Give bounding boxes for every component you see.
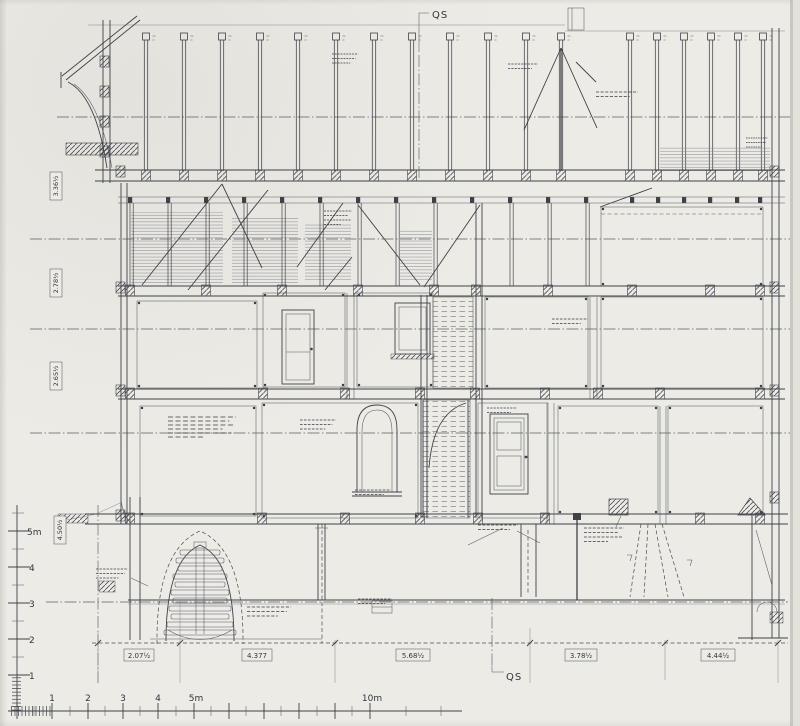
dimension-value: 4.377	[247, 652, 267, 660]
stair-first-floor	[423, 400, 470, 518]
basement-pillar	[518, 524, 539, 597]
scanned-section-drawing-sheet: QS QS 2.07½ 4.377 5.68½ 3.78½ 4.44½ 3.36…	[0, 0, 800, 726]
hscale-label: 2	[85, 694, 91, 704]
cellar-vault-stair	[157, 531, 243, 644]
first-floor	[140, 400, 763, 524]
storey-height-labels: 3.36½ 2.78½ 2.65½ 4.50½	[50, 172, 66, 544]
building-cross-section: QS QS 2.07½ 4.377 5.68½ 3.78½ 4.44½ 3.36…	[0, 0, 800, 726]
second-floor	[137, 293, 763, 399]
vertical-scale-ruler: 5m 4 3 2 1	[8, 505, 42, 712]
vscale-label: 3	[29, 600, 35, 610]
door-first-floor	[490, 414, 528, 494]
hscale-label: 5m	[189, 694, 204, 704]
vscale-label: 2	[29, 636, 35, 646]
storey-height-value: 2.78½	[52, 273, 60, 294]
section-label-bottom: QS	[506, 672, 522, 683]
storey-height-value: 3.36½	[52, 176, 60, 197]
dimension-value: 3.78½	[570, 652, 593, 660]
hscale-label: 10m	[362, 694, 382, 704]
stair-second-floor	[433, 297, 473, 388]
dimension-chain: 2.07½ 4.377 5.68½ 3.78½ 4.44½	[92, 600, 788, 683]
dimension-value: 5.68½	[402, 652, 425, 660]
storey-height-value: 2.65½	[52, 366, 60, 387]
dimension-value: 2.07½	[128, 652, 151, 660]
annotation-scribbles	[96, 54, 768, 616]
storey-height-value: 4.50½	[56, 520, 64, 541]
center-post	[573, 513, 581, 600]
vscale-label: 5m	[27, 528, 42, 538]
hscale-label: 3	[120, 694, 126, 704]
flared-pier	[627, 524, 692, 597]
vscale-label: 4	[29, 564, 35, 574]
dimension-value: 4.44½	[707, 652, 730, 660]
vscale-label: 1	[29, 672, 35, 682]
door-second-floor	[282, 310, 314, 384]
attic-timber-frame	[128, 184, 763, 290]
hscale-label: 4	[155, 694, 161, 704]
arched-window-first-floor	[352, 405, 402, 496]
section-label-top: QS	[432, 10, 448, 21]
roof-structure	[61, 8, 785, 183]
window-second-floor	[391, 303, 434, 359]
eave-bracket	[61, 16, 140, 183]
horizontal-scale-ruler: 1 2 3 4 5m 10m	[10, 694, 462, 719]
hscale-label: 1	[49, 694, 55, 704]
